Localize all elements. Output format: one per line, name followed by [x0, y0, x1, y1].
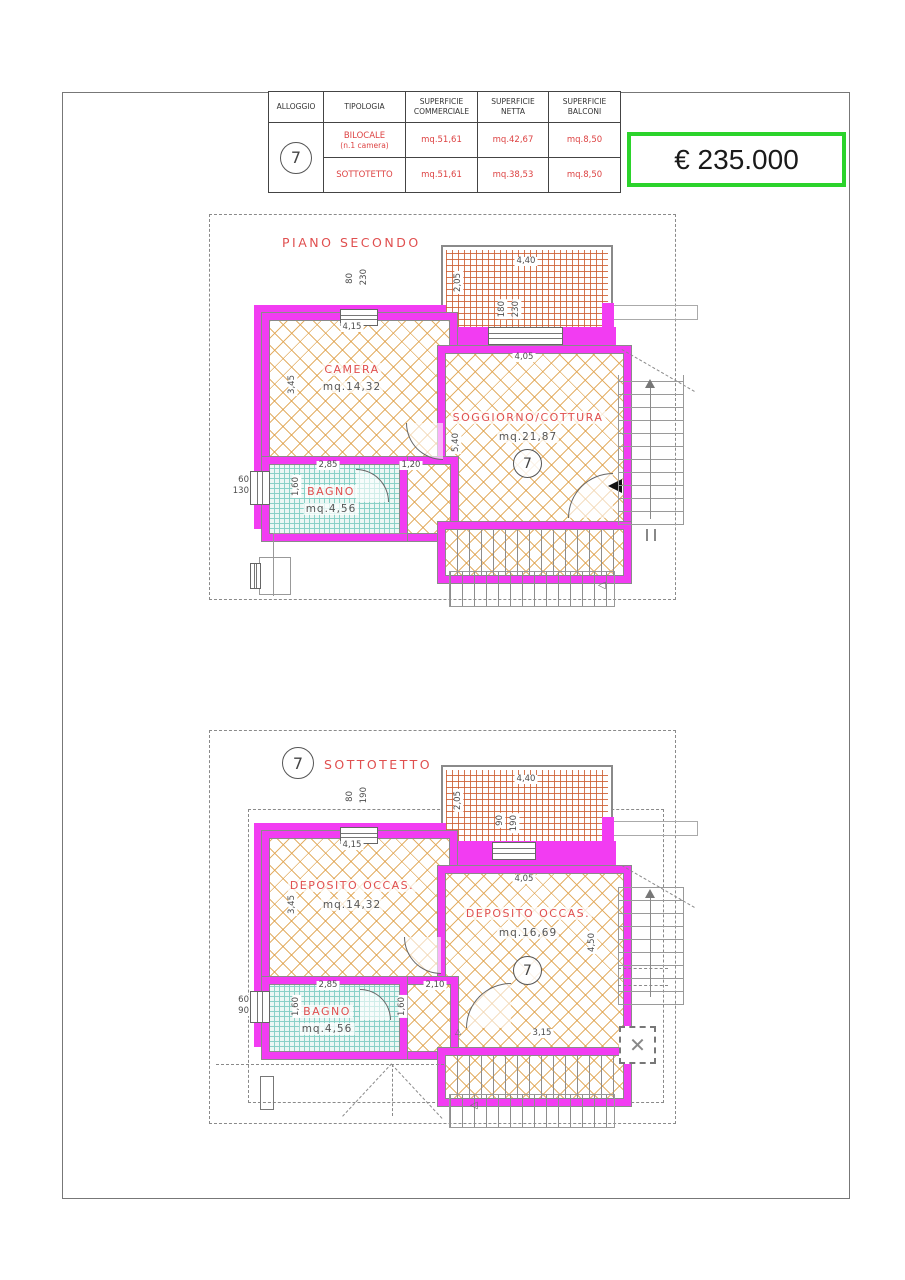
room-area-bagno: mq.4,56 — [300, 1023, 355, 1035]
stair-direction-arrow: ◁ — [470, 1101, 478, 1111]
neighbor-wall — [612, 305, 698, 320]
dimension-label: 180 — [498, 299, 507, 319]
table-row: 7 BILOCALE (n.1 camera) mq.51,61 mq.42,6… — [269, 123, 621, 158]
window — [492, 842, 536, 860]
neighbor-wall — [612, 821, 698, 836]
tipologia-sub: (n.1 camera) — [325, 141, 404, 150]
roof-line — [216, 1064, 444, 1065]
skylight: ✕ — [619, 1026, 656, 1064]
dimension-label: 4,05 — [513, 353, 536, 362]
dimension-label: 190 — [510, 813, 519, 833]
window — [488, 327, 563, 345]
dimension-label: 2,85 — [317, 461, 340, 470]
room-label-bagno: BAGNO — [305, 485, 357, 498]
floor-plan-sheet: ALLOGGIO TIPOLOGIA SUPERFICIE COMMERCIAL… — [0, 0, 905, 1280]
room-area-deposito-2: mq.16,69 — [497, 927, 559, 939]
plan-title: PIANO SECONDO — [282, 235, 421, 250]
plan-title: SOTTOTETTO — [324, 757, 432, 772]
dimension-label: 4,05 — [513, 875, 536, 884]
dimension-label: 80 — [346, 789, 355, 804]
external-stair — [449, 571, 615, 607]
unit-spec-table: ALLOGGIO TIPOLOGIA SUPERFICIE COMMERCIAL… — [268, 91, 621, 193]
dimension-label: 3,45 — [288, 373, 297, 396]
floor-plan-sottotetto: 7 SOTTOTETTO △ DEPOSITO OCCAS. mq. — [209, 730, 676, 1124]
unit-number-cell: 7 — [269, 123, 324, 193]
stair-treads — [618, 887, 684, 1005]
window — [250, 471, 270, 505]
dimension-label: 4,50 — [588, 931, 597, 954]
header-sup-commerciale: SUPERFICIE COMMERCIALE — [406, 92, 478, 123]
stair-treads — [445, 529, 624, 576]
dimension-label: 3,15 — [531, 1029, 554, 1038]
room-label-camera: CAMERA — [322, 363, 381, 376]
commerciale-cell: mq.51,61 — [406, 158, 478, 193]
dimension-label: 1,60 — [292, 995, 301, 1018]
roof-ridge-line — [392, 1064, 393, 1116]
dimension-label: 1,60 — [398, 995, 407, 1018]
netta-cell: mq.38,53 — [478, 158, 549, 193]
unit-number-circle: 7 — [282, 747, 314, 779]
unit-number-circle: 7 — [280, 142, 312, 174]
room-area-soggiorno: mq.21,87 — [497, 431, 559, 443]
dimension-label: 1,20 — [400, 461, 423, 470]
room-area-deposito-1: mq.14,32 — [321, 899, 383, 911]
dimension-label: 4,40 — [515, 775, 538, 784]
stair-break-ticks — [646, 529, 656, 541]
dimension-label: 2,05 — [454, 789, 463, 812]
stair-direction-arrow: ◁ — [598, 581, 606, 591]
room-label-bagno: BAGNO — [301, 1005, 353, 1018]
roof-dashed-band — [618, 968, 668, 986]
dimension-label: 4,15 — [341, 323, 364, 332]
dimension-label: 4,40 — [515, 257, 538, 266]
netta-cell: mq.42,67 — [478, 123, 549, 158]
header-sup-netta: SUPERFICIE NETTA — [478, 92, 549, 123]
dimension-label: 190 — [360, 785, 369, 805]
room-area-camera: mq.14,32 — [321, 381, 383, 393]
tipologia-cell: BILOCALE (n.1 camera) — [324, 123, 406, 158]
stair-walkline — [650, 387, 651, 519]
neighbor-wall — [273, 533, 407, 596]
tipologia-cell: SOTTOTETTO — [324, 158, 406, 193]
dimension-label: 2,10 — [424, 981, 447, 990]
dimension-label: 230 — [512, 299, 521, 319]
chimney — [260, 1076, 274, 1110]
dimension-label: 2,85 — [317, 981, 340, 990]
stair-treads — [445, 1055, 624, 1099]
window-height: 130 — [225, 486, 249, 497]
stair-treads — [618, 375, 684, 525]
table-header-row: ALLOGGIO TIPOLOGIA SUPERFICIE COMMERCIAL… — [269, 92, 621, 123]
unit-number-circle: 7 — [513, 956, 542, 985]
stair-direction-arrow — [645, 379, 655, 388]
balconi-cell: mq.8,50 — [549, 123, 621, 158]
tipologia-main: BILOCALE — [325, 131, 404, 141]
stair-treads — [450, 572, 614, 606]
dimension-label: 1,60 — [292, 475, 301, 498]
price-value: € 235.000 — [674, 144, 799, 176]
balconi-cell: mq.8,50 — [549, 158, 621, 193]
commerciale-cell: mq.51,61 — [406, 123, 478, 158]
dimension-label: 3,45 — [288, 893, 297, 916]
dimension-label: 2,05 — [454, 271, 463, 294]
stair-direction-arrow — [645, 889, 655, 898]
dimension-label: 90 — [496, 813, 505, 828]
window-width: 60 — [225, 475, 249, 486]
floor-plan-piano-secondo: PIANO SECONDO CAMERA mq.14,32 SOGGIORNO — [209, 214, 676, 600]
room-label-soggiorno: SOGGIORNO/COTTURA — [451, 411, 606, 424]
window-width: 60 — [225, 995, 249, 1006]
header-sup-balconi: SUPERFICIE BALCONI — [549, 92, 621, 123]
window — [250, 991, 270, 1023]
room-label-deposito-1: DEPOSITO OCCAS. — [288, 879, 416, 892]
stair-start-arrow: △ — [455, 1028, 461, 1036]
unit-number-circle: 7 — [513, 449, 542, 478]
header-alloggio: ALLOGGIO — [269, 92, 324, 123]
dimension-label: 5,40 — [452, 431, 461, 454]
dimension-label: 80 — [346, 271, 355, 286]
dimension-label: 4,15 — [341, 841, 364, 850]
communal-stair — [618, 331, 684, 571]
window-size-label: 60 90 — [224, 995, 250, 1016]
dimension-label: 230 — [360, 267, 369, 287]
room-area-bagno: mq.4,56 — [304, 503, 359, 515]
room-label-deposito-2: DEPOSITO OCCAS. — [464, 907, 592, 920]
price-box: € 235.000 — [627, 132, 846, 187]
header-tipologia: TIPOLOGIA — [324, 92, 406, 123]
neighbor-wall — [259, 557, 291, 595]
window — [250, 563, 261, 589]
window-size-label: 60 130 — [224, 475, 250, 496]
window-height: 90 — [225, 1006, 249, 1017]
